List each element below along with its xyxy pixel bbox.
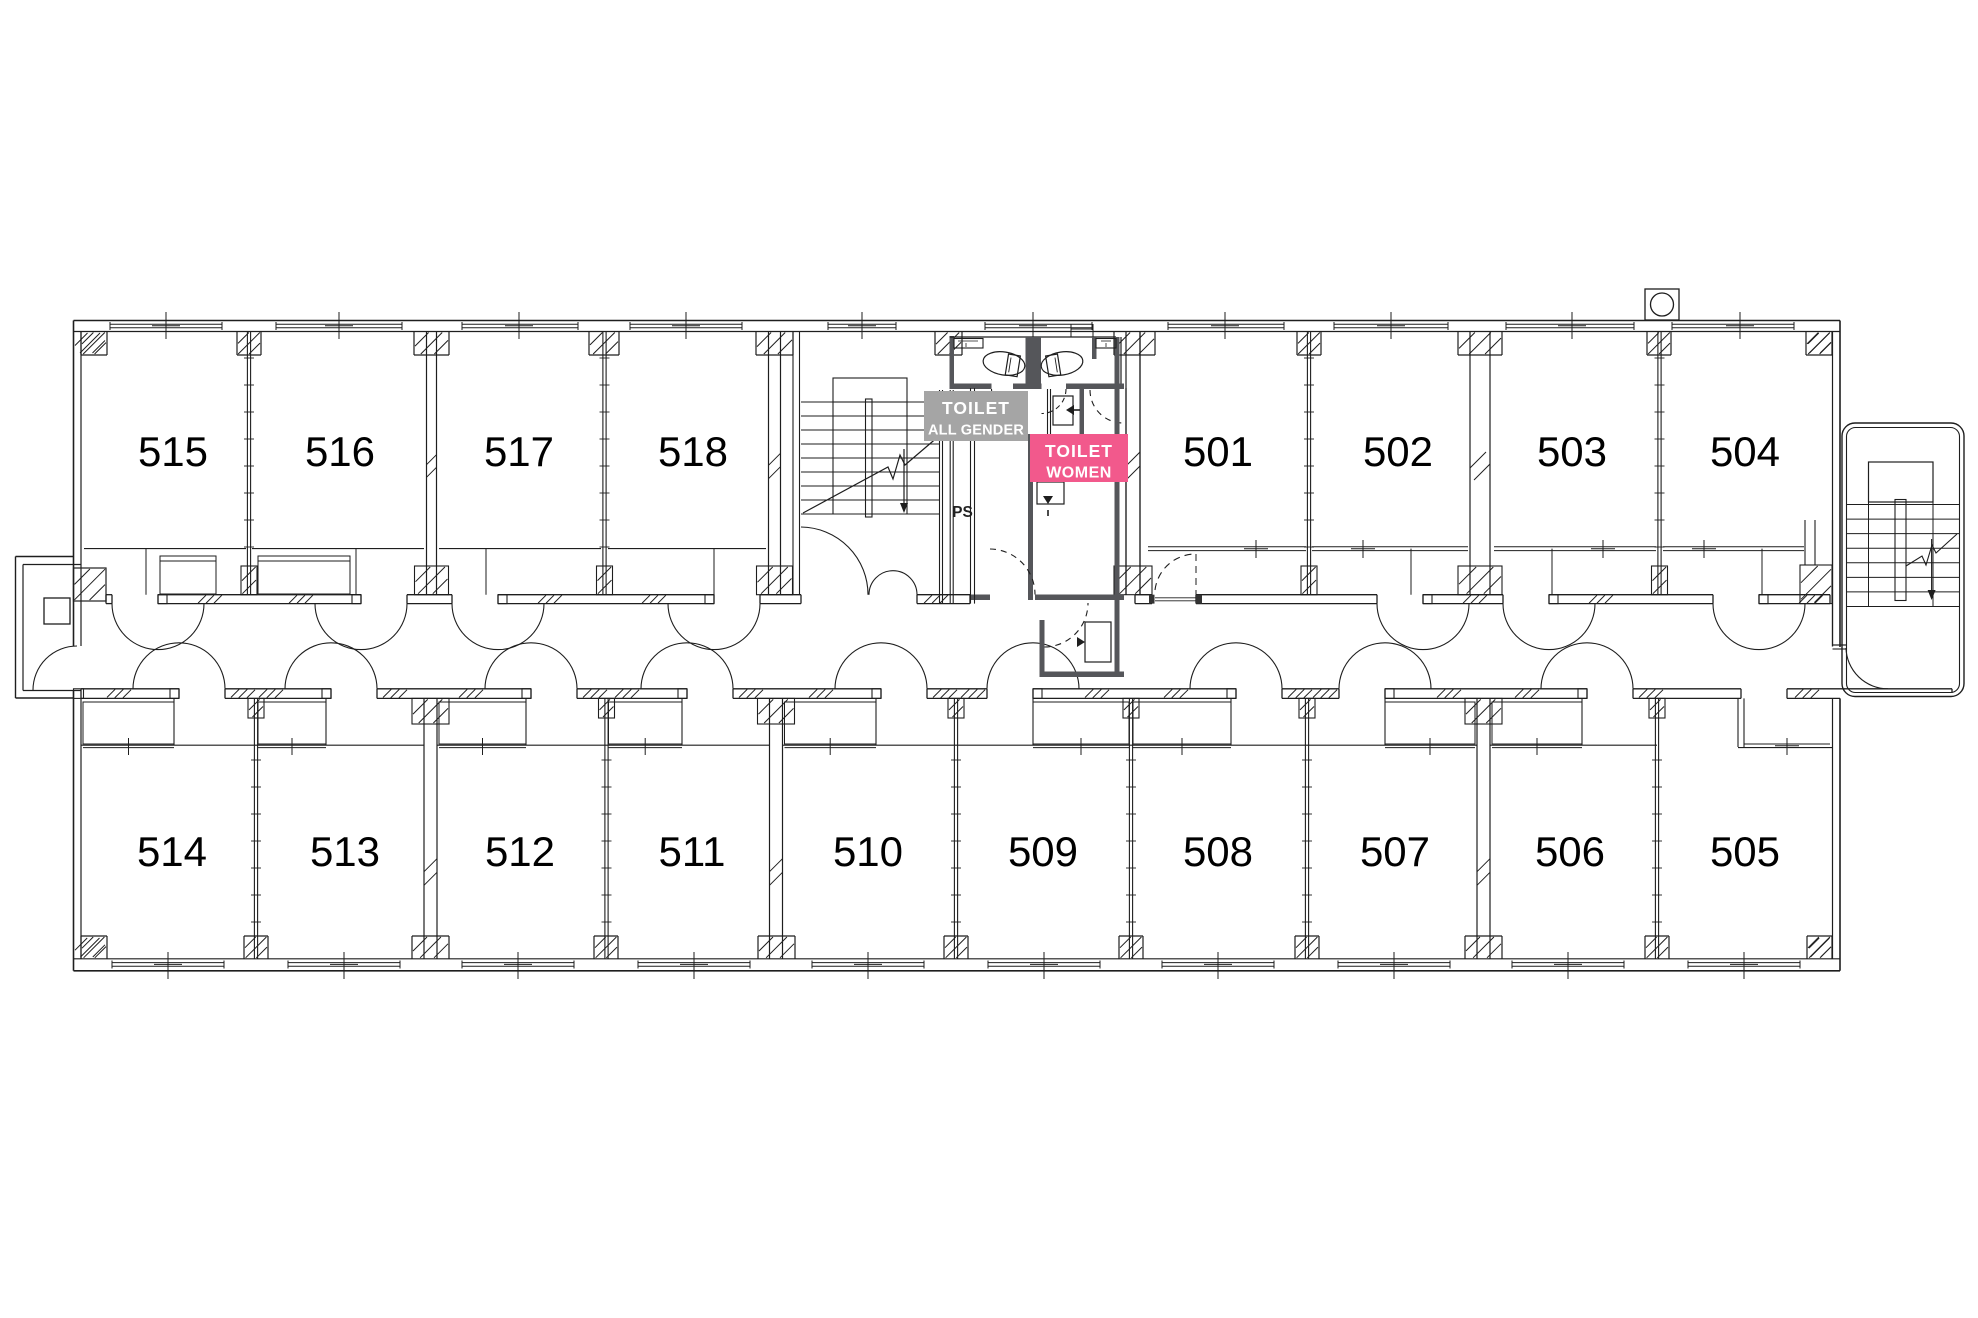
svg-text:517: 517 [484, 428, 554, 475]
svg-text:505: 505 [1710, 828, 1780, 875]
svg-text:511: 511 [659, 828, 726, 875]
svg-text:PS: PS [952, 504, 973, 521]
svg-text:512: 512 [485, 828, 555, 875]
svg-text:508: 508 [1183, 828, 1253, 875]
svg-text:518: 518 [658, 428, 728, 475]
svg-text:507: 507 [1360, 828, 1430, 875]
svg-text:513: 513 [310, 828, 380, 875]
svg-text:503: 503 [1537, 428, 1607, 475]
svg-text:514: 514 [137, 828, 207, 875]
svg-text:502: 502 [1363, 428, 1433, 475]
svg-text:504: 504 [1710, 428, 1780, 475]
svg-text:501: 501 [1183, 428, 1253, 475]
svg-text:515: 515 [138, 428, 208, 475]
svg-text:TOILET: TOILET [1045, 441, 1113, 461]
svg-text:TOILET: TOILET [942, 398, 1010, 418]
svg-text:509: 509 [1008, 828, 1078, 875]
svg-text:516: 516 [305, 428, 375, 475]
svg-text:WOMEN: WOMEN [1046, 465, 1112, 482]
svg-text:510: 510 [833, 828, 903, 875]
svg-text:ALL GENDER: ALL GENDER [928, 423, 1024, 439]
svg-text:506: 506 [1535, 828, 1605, 875]
